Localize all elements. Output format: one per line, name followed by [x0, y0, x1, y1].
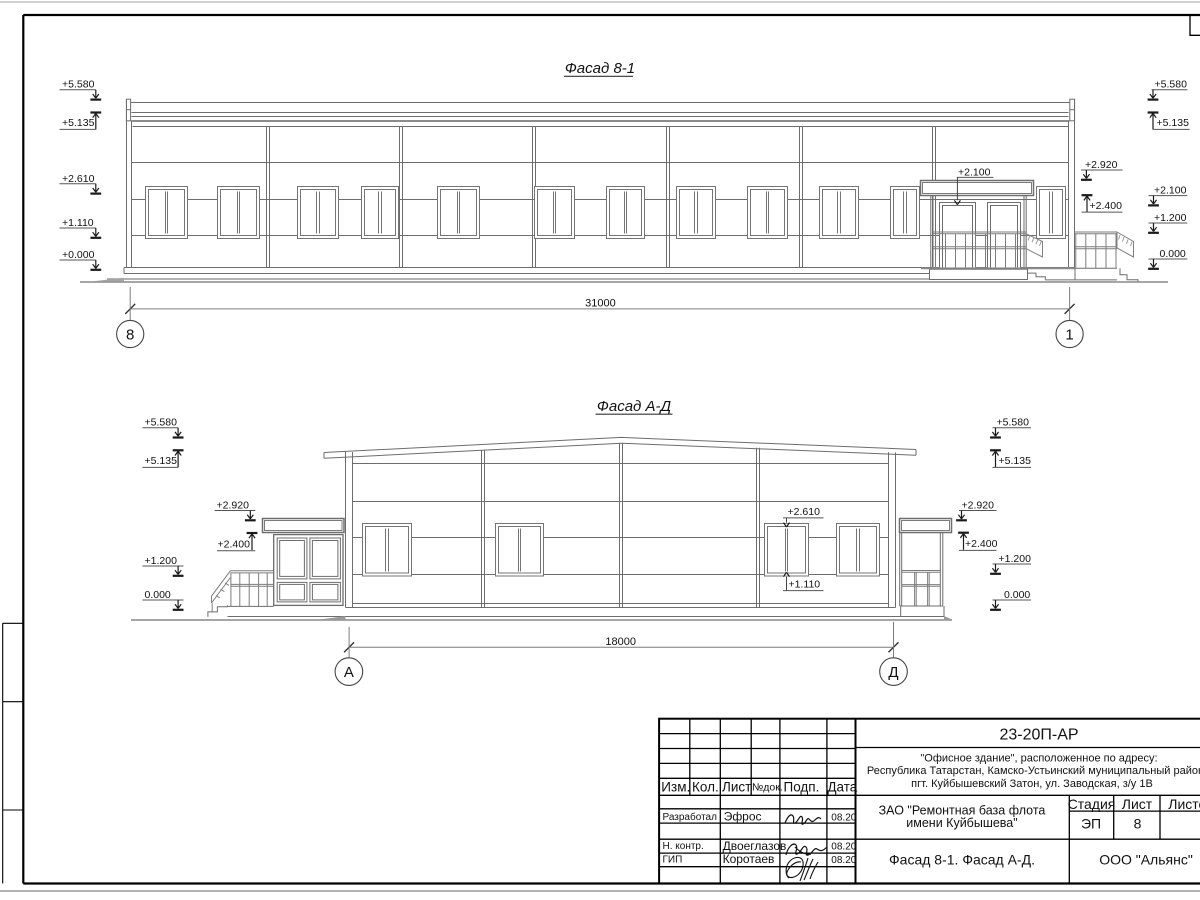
svg-text:+5.135: +5.135 [1157, 117, 1190, 129]
svg-text:+1.110: +1.110 [62, 217, 94, 229]
svg-text:+2.400: +2.400 [965, 538, 998, 550]
svg-text:1: 1 [1065, 327, 1073, 344]
svg-text:08.20: 08.20 [831, 855, 856, 866]
svg-text:08.20: 08.20 [831, 812, 856, 823]
svg-text:Изм.: Изм. [661, 779, 690, 794]
svg-text:0.000: 0.000 [1004, 589, 1030, 601]
svg-text:ГИП: ГИП [663, 855, 683, 866]
svg-text:0.000: 0.000 [1160, 248, 1186, 260]
svg-text:+2.610: +2.610 [788, 506, 821, 518]
svg-text:8: 8 [126, 327, 134, 344]
svg-text:Разработал: Разработал [663, 811, 718, 823]
svg-text:+2.610: +2.610 [62, 173, 95, 185]
svg-text:пгт. Куйбышевский Затон, ул. З: пгт. Куйбышевский Затон, ул. Заводская, … [911, 778, 1153, 790]
svg-text:Фасад 8-1. Фасад А-Д.: Фасад 8-1. Фасад А-Д. [889, 852, 1035, 868]
svg-text:+2.920: +2.920 [962, 500, 995, 512]
svg-text:+5.135: +5.135 [62, 117, 95, 129]
svg-text:имени Куйбышева": имени Куйбышева" [906, 816, 1017, 830]
svg-text:+2.400: +2.400 [1090, 200, 1123, 212]
svg-text:+2.100: +2.100 [958, 166, 991, 178]
svg-text:Подп.: Подп. [784, 779, 820, 794]
svg-text:№док.: №док. [752, 781, 783, 793]
svg-text:Двоеглазов: Двоеглазов [723, 839, 787, 853]
svg-text:+2.920: +2.920 [1085, 159, 1118, 171]
svg-text:+5.580: +5.580 [997, 417, 1030, 429]
svg-text:Фасад 8-1: Фасад 8-1 [565, 60, 635, 77]
svg-text:18000: 18000 [605, 636, 636, 648]
svg-text:+2.100: +2.100 [1154, 185, 1187, 197]
svg-text:Д: Д [888, 664, 898, 681]
svg-text:8: 8 [1134, 816, 1142, 832]
svg-text:Эфрос: Эфрос [724, 810, 762, 824]
svg-text:Н. контр.: Н. контр. [663, 841, 704, 852]
svg-text:А: А [344, 664, 354, 681]
svg-text:+1.200: +1.200 [1154, 212, 1187, 224]
svg-text:"Офисное здание", расположенно: "Офисное здание", расположенное по адрес… [920, 753, 1157, 765]
svg-text:Листов: Листов [1168, 796, 1200, 812]
svg-text:Республика Татарстан, Камско-У: Республика Татарстан, Камско-Устьинский … [867, 765, 1200, 777]
svg-text:ООО "Альянс": ООО "Альянс" [1099, 852, 1193, 868]
svg-text:+5.135: +5.135 [145, 455, 178, 467]
svg-text:+2.400: +2.400 [218, 538, 251, 550]
svg-text:Лист: Лист [722, 779, 751, 794]
svg-text:Коротаев: Коротаев [723, 852, 775, 866]
svg-text:+1.200: +1.200 [145, 555, 178, 567]
svg-text:+5.580: +5.580 [62, 79, 95, 91]
svg-text:31000: 31000 [585, 298, 616, 310]
svg-text:Фасад А-Д: Фасад А-Д [597, 398, 672, 415]
svg-text:+5.580: +5.580 [145, 417, 178, 429]
svg-text:+1.110: +1.110 [789, 579, 821, 591]
svg-text:Стадия: Стадия [1068, 796, 1116, 812]
svg-text:0.000: 0.000 [145, 589, 171, 601]
svg-text:+2.920: +2.920 [217, 500, 250, 512]
svg-text:Кол.: Кол. [692, 779, 719, 794]
svg-text:+5.135: +5.135 [999, 455, 1032, 467]
svg-text:Дата: Дата [827, 779, 857, 794]
svg-text:+5.580: +5.580 [1155, 79, 1188, 91]
svg-text:23-20П-АР: 23-20П-АР [999, 727, 1078, 744]
svg-text:08.20: 08.20 [831, 841, 856, 852]
svg-text:Лист: Лист [1122, 796, 1153, 812]
svg-text:+1.200: +1.200 [999, 553, 1032, 565]
svg-text:+0.000: +0.000 [62, 249, 95, 261]
svg-text:ЭП: ЭП [1081, 816, 1101, 832]
